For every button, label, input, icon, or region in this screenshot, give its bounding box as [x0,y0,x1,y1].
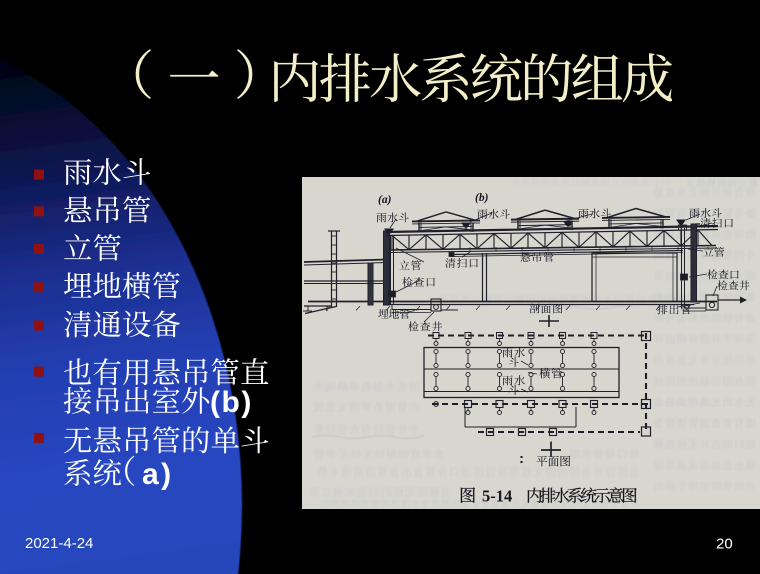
svg-text:2021-4-24: 2021-4-24 [25,535,93,552]
svg-text:a): a) [142,458,174,491]
svg-text:20: 20 [716,536,733,553]
svg-text:(a): (a) [378,194,392,206]
svg-text:(b): (b) [210,386,253,419]
svg-text:(b): (b) [475,192,489,204]
svg-text:5-14: 5-14 [482,487,512,506]
